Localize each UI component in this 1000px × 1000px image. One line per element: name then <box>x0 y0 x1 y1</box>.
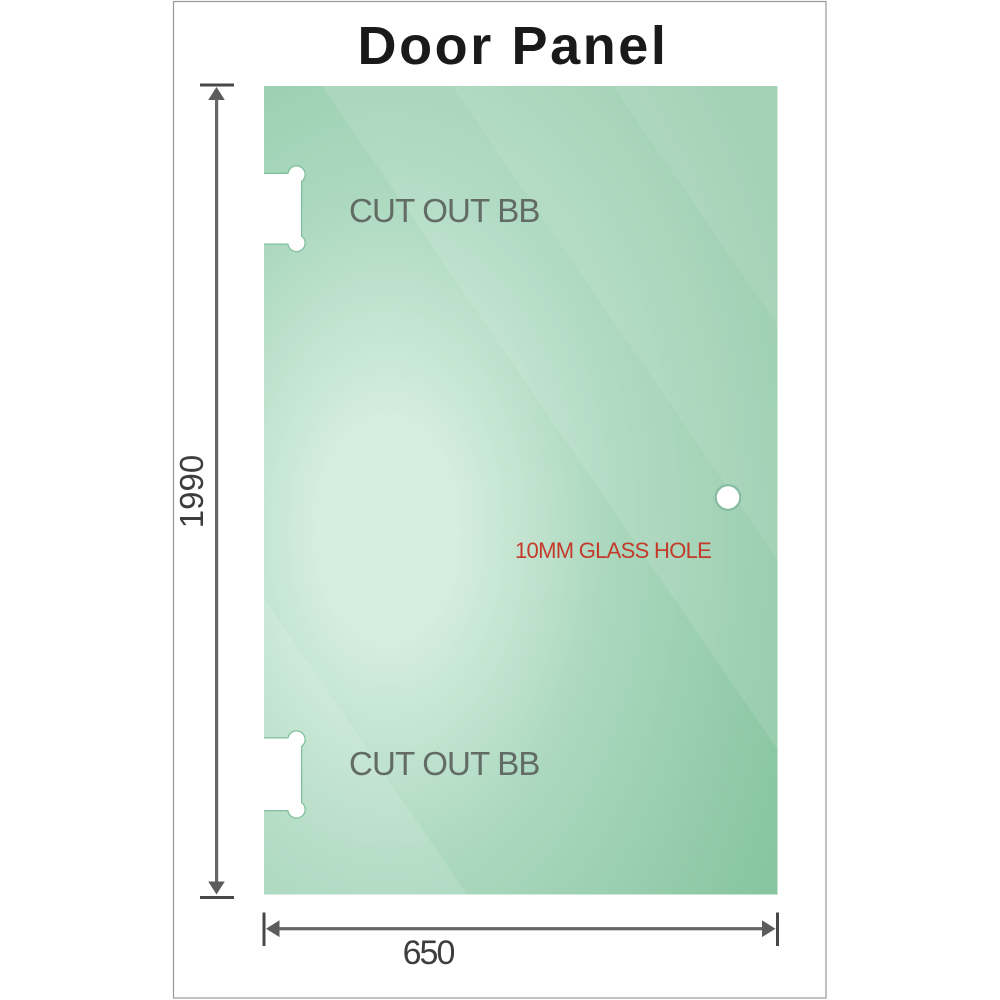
svg-text:CUT OUT BB: CUT OUT BB <box>349 192 540 229</box>
svg-text:1990: 1990 <box>173 455 210 528</box>
svg-text:Door Panel: Door Panel <box>357 16 668 76</box>
svg-text:CUT OUT BB: CUT OUT BB <box>349 745 540 782</box>
svg-text:650: 650 <box>403 934 455 972</box>
svg-text:10MM GLASS HOLE: 10MM GLASS HOLE <box>515 538 711 563</box>
